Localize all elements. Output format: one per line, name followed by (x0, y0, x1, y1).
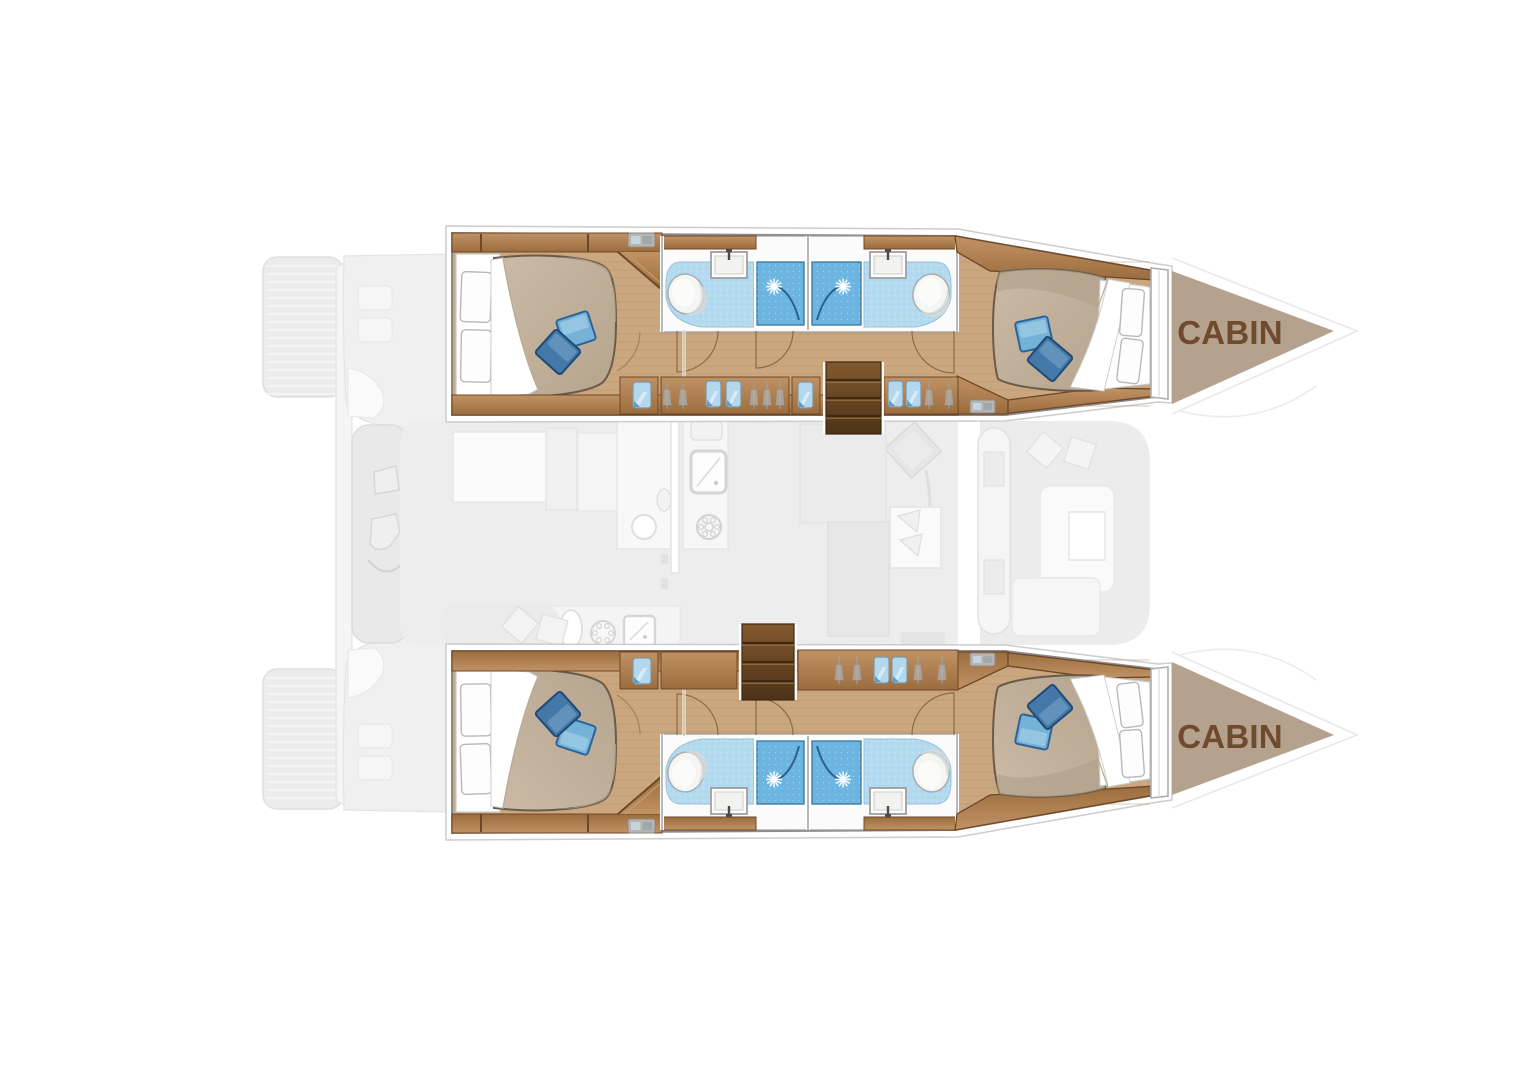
svg-text:CABIN: CABIN (1177, 718, 1283, 755)
svg-text:CABIN: CABIN (1177, 314, 1283, 351)
